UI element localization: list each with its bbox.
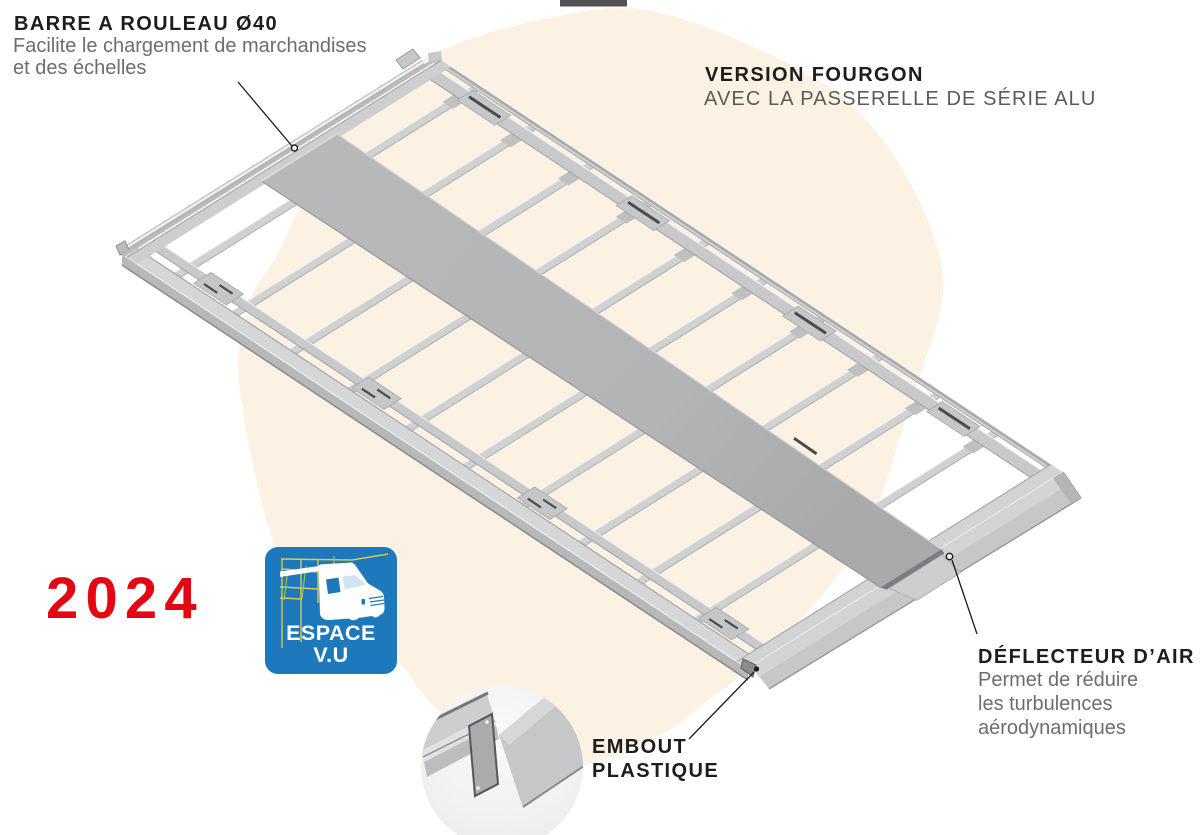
svg-text:EMBOUT: EMBOUT [592, 736, 687, 758]
svg-text:BARRE A ROULEAU Ø40: BARRE A ROULEAU Ø40 [14, 13, 278, 35]
svg-text:les turbulences: les turbulences [978, 693, 1113, 715]
svg-text:2024: 2024 [46, 566, 204, 631]
svg-text:V.U: V.U [313, 643, 348, 667]
svg-text:DÉFLECTEUR D’AIR: DÉFLECTEUR D’AIR [978, 645, 1195, 668]
svg-text:VERSION FOURGON: VERSION FOURGON [705, 64, 924, 86]
svg-text:et des échelles: et des échelles [13, 57, 146, 79]
svg-text:PLASTIQUE: PLASTIQUE [592, 760, 719, 782]
svg-text:aérodynamiques: aérodynamiques [978, 717, 1126, 739]
svg-text:Facilite le chargement de marc: Facilite le chargement de marchandises [13, 35, 367, 57]
svg-text:Permet de réduire: Permet de réduire [978, 669, 1138, 691]
svg-text:AVEC LA PASSERELLE DE SÉRIE AL: AVEC LA PASSERELLE DE SÉRIE ALU [704, 87, 1096, 110]
svg-text:ESPACE: ESPACE [286, 621, 376, 645]
